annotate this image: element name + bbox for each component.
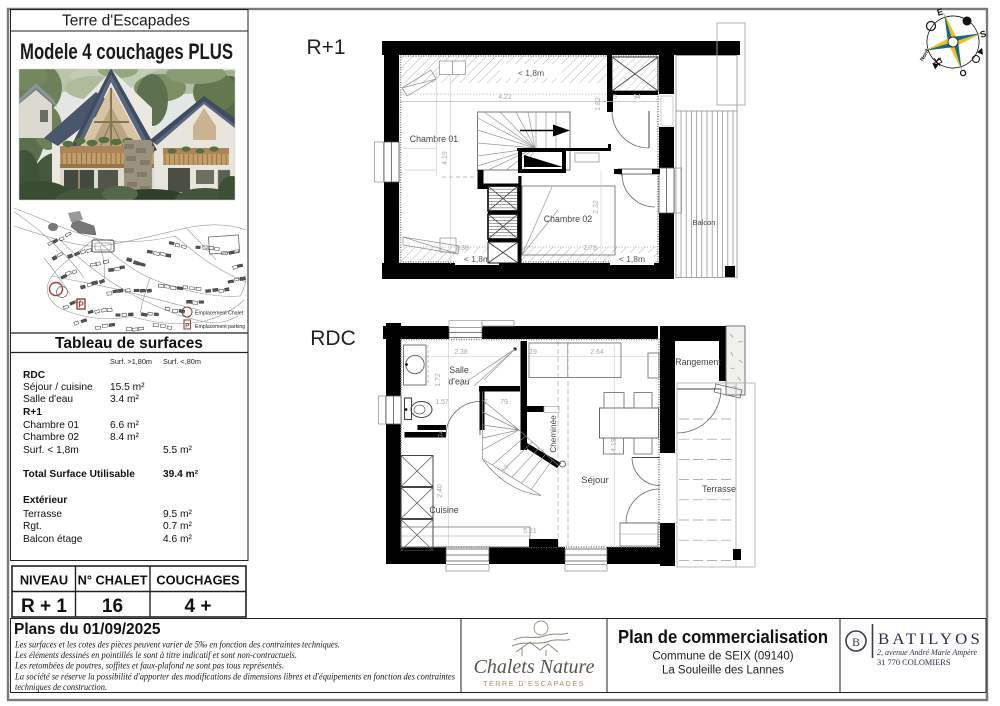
svg-text:Salle d'eau: Salle d'eau bbox=[23, 394, 73, 405]
svg-text:Emplacement parking: Emplacement parking bbox=[195, 324, 245, 330]
svg-text:Surf. >1,80m: Surf. >1,80m bbox=[110, 357, 152, 366]
svg-text:Rgt.: Rgt. bbox=[23, 521, 42, 532]
svg-text:P: P bbox=[78, 301, 84, 310]
svg-text:Séjour: Séjour bbox=[581, 475, 608, 486]
svg-text:Chalets Nature: Chalets Nature bbox=[474, 656, 595, 678]
svg-text:COUCHAGES: COUCHAGES bbox=[156, 573, 240, 588]
svg-text:< 1,8m: < 1,8m bbox=[518, 68, 544, 78]
svg-text:31 770 COLOMIERS: 31 770 COLOMIERS bbox=[877, 658, 951, 667]
svg-text:BATILYOS: BATILYOS bbox=[878, 631, 983, 648]
svg-text:4 +: 4 + bbox=[185, 596, 212, 617]
svg-text:2.38: 2.38 bbox=[454, 349, 468, 356]
svg-text:74: 74 bbox=[438, 430, 445, 438]
svg-text:79: 79 bbox=[500, 399, 508, 406]
svg-text:R + 1: R + 1 bbox=[21, 596, 67, 617]
svg-text:5: 5 bbox=[613, 94, 617, 101]
svg-text:Plan de commercialisation: Plan de commercialisation bbox=[618, 627, 828, 647]
svg-text:Modele 4 couchages PLUS: Modele 4 couchages PLUS bbox=[20, 39, 233, 64]
svg-text:39.4 m²: 39.4 m² bbox=[163, 469, 199, 480]
svg-text:Tableau de surfaces: Tableau de surfaces bbox=[55, 335, 203, 352]
svg-text:19: 19 bbox=[529, 349, 537, 356]
svg-text:4.6 m²: 4.6 m² bbox=[163, 534, 192, 545]
svg-text:R+1: R+1 bbox=[23, 407, 42, 418]
svg-text:1.72: 1.72 bbox=[435, 373, 442, 387]
svg-text:5.5 m²: 5.5 m² bbox=[163, 445, 192, 456]
svg-text:NIVEAU: NIVEAU bbox=[20, 573, 68, 588]
svg-text:Chambre 02: Chambre 02 bbox=[23, 432, 79, 443]
svg-text:Rangement: Rangement bbox=[675, 357, 721, 367]
svg-text:0.7 m²: 0.7 m² bbox=[163, 521, 192, 532]
svg-text:9.5 m²: 9.5 m² bbox=[163, 509, 192, 520]
svg-text:TERRE D'ESCAPADES: TERRE D'ESCAPADES bbox=[483, 679, 585, 688]
svg-text:< 1,8m: < 1,8m bbox=[619, 254, 645, 264]
svg-text:2.40: 2.40 bbox=[437, 484, 444, 498]
svg-text:Les surfaces et les cotes des: Les surfaces et les cotes des pièces peu… bbox=[14, 640, 340, 651]
svg-text:Terre d'Escapades: Terre d'Escapades bbox=[62, 13, 190, 30]
svg-text:2, avenue André Marie Ampère: 2, avenue André Marie Ampère bbox=[877, 648, 977, 657]
svg-text:Les retombées de poutres, soff: Les retombées de poutres, soffites et fa… bbox=[14, 661, 284, 672]
svg-text:2.78: 2.78 bbox=[583, 245, 597, 252]
svg-text:Emplacement Chalet: Emplacement Chalet bbox=[195, 311, 244, 317]
svg-text:16: 16 bbox=[102, 596, 123, 617]
svg-text:Commune de SEIX (09140): Commune de SEIX (09140) bbox=[652, 651, 793, 663]
svg-text:B: B bbox=[852, 635, 860, 649]
svg-text:94: 94 bbox=[633, 94, 641, 101]
svg-text:Les éléments dessinés en point: Les éléments dessinés en pointillés le s… bbox=[14, 650, 297, 661]
svg-text:Balcon: Balcon bbox=[693, 218, 716, 227]
svg-text:Terrasse: Terrasse bbox=[702, 484, 736, 494]
svg-text:Surf. < 1,8m: Surf. < 1,8m bbox=[23, 445, 79, 456]
svg-text:1.57: 1.57 bbox=[435, 399, 449, 406]
svg-text:Séjour / cuisine: Séjour / cuisine bbox=[23, 382, 93, 393]
svg-text:La société se réserve la possi: La société se réserve la possibilité d'a… bbox=[14, 671, 455, 682]
svg-text:RDC: RDC bbox=[310, 327, 356, 350]
svg-text:4.22: 4.22 bbox=[498, 94, 512, 101]
svg-text:Chambre 01: Chambre 01 bbox=[410, 134, 459, 144]
svg-text:Chambre 01: Chambre 01 bbox=[23, 420, 79, 431]
svg-text:Chambre 02: Chambre 02 bbox=[544, 214, 593, 224]
svg-text:1.82: 1.82 bbox=[595, 97, 602, 111]
svg-text:3.4 m²: 3.4 m² bbox=[110, 394, 139, 405]
svg-text:R+1: R+1 bbox=[306, 36, 345, 59]
svg-text:Plans du 01/09/2025: Plans du 01/09/2025 bbox=[14, 621, 161, 638]
svg-text:Surf. <,80m: Surf. <,80m bbox=[163, 357, 201, 366]
svg-text:N° CHALET: N° CHALET bbox=[78, 573, 148, 588]
svg-text:< 1,8m: < 1,8m bbox=[464, 254, 490, 264]
svg-text:4.19: 4.19 bbox=[442, 151, 449, 165]
svg-text:Terrasse: Terrasse bbox=[23, 509, 62, 520]
svg-text:RDC: RDC bbox=[23, 370, 46, 381]
svg-text:Extérieur: Extérieur bbox=[23, 495, 67, 506]
svg-text:P: P bbox=[185, 324, 189, 330]
svg-text:2.64: 2.64 bbox=[590, 349, 604, 356]
svg-text:techniques de construction.: techniques de construction. bbox=[15, 683, 107, 693]
svg-text:Total Surface Utilisable: Total Surface Utilisable bbox=[23, 469, 135, 480]
svg-text:La Souleille des Lannes: La Souleille des Lannes bbox=[662, 665, 784, 677]
svg-text:Cuisine: Cuisine bbox=[429, 505, 458, 515]
svg-text:8.4 m²: 8.4 m² bbox=[110, 432, 139, 443]
svg-text:6.6 m²: 6.6 m² bbox=[110, 420, 139, 431]
svg-text:Salle: Salle bbox=[449, 365, 469, 375]
svg-text:2.32: 2.32 bbox=[593, 200, 600, 214]
svg-text:15.5 m²: 15.5 m² bbox=[110, 382, 145, 393]
svg-text:Balcon étage: Balcon étage bbox=[23, 534, 83, 545]
svg-text:Cheminée: Cheminée bbox=[549, 415, 558, 453]
